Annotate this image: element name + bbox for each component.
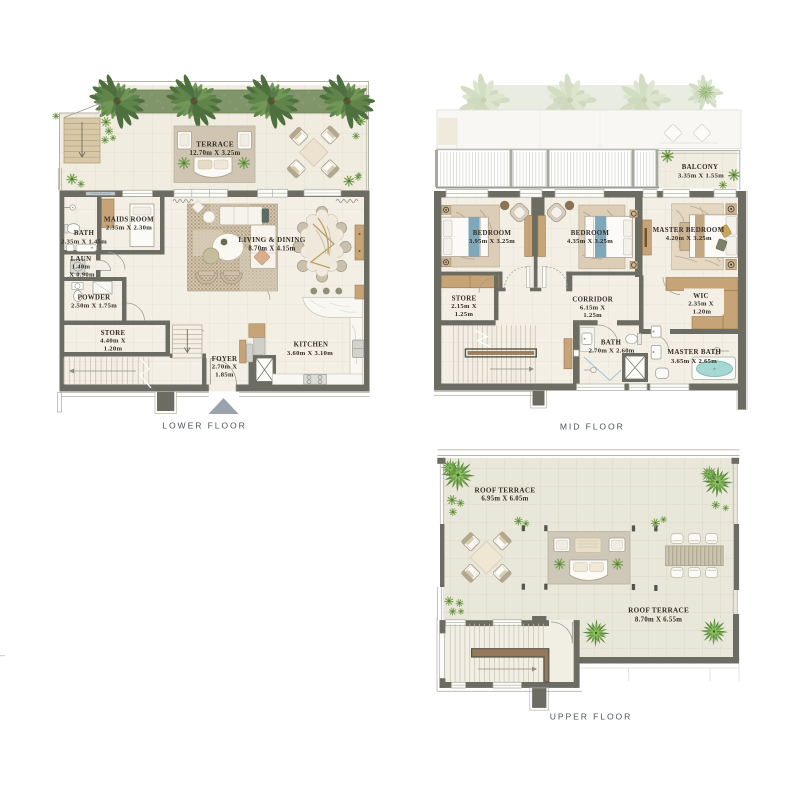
svg-text:CORRIDOR: CORRIDOR (572, 297, 613, 304)
svg-text:LOWER FLOOR: LOWER FLOOR (162, 421, 246, 431)
svg-text:BEDROOM: BEDROOM (473, 230, 512, 237)
svg-text:1.20m: 1.20m (693, 308, 712, 315)
svg-text:4.35m X 3.25m: 4.35m X 3.25m (567, 238, 613, 245)
svg-text:1.20m: 1.20m (104, 345, 123, 352)
svg-text:MAIDS ROOM: MAIDS ROOM (104, 217, 154, 224)
svg-text:8.70m X 6.55m: 8.70m X 6.55m (635, 617, 682, 624)
svg-text:BALCONY: BALCONY (682, 164, 719, 171)
svg-text:LIVING & DINING: LIVING & DINING (238, 236, 305, 244)
svg-text:STORE: STORE (452, 295, 477, 302)
svg-text:3.35m X 1.55m: 3.35m X 1.55m (678, 172, 724, 179)
svg-text:3.95m X 3.25m: 3.95m X 3.25m (469, 238, 515, 245)
svg-text:MASTER BATH: MASTER BATH (668, 349, 722, 356)
svg-text:BATH: BATH (601, 339, 622, 346)
svg-text:BATH: BATH (74, 230, 95, 237)
svg-text:2.35m X 1.45m: 2.35m X 1.45m (61, 239, 107, 246)
svg-text:2.15m X: 2.15m X (451, 303, 477, 310)
svg-text:4.20m X 3.25m: 4.20m X 3.25m (666, 235, 712, 242)
svg-text:1.40m: 1.40m (72, 264, 91, 271)
svg-text:STORE: STORE (101, 330, 126, 337)
svg-text:ROOF TERRACE: ROOF TERRACE (628, 607, 689, 615)
svg-text:3.60m X 3.10m: 3.60m X 3.10m (287, 350, 333, 357)
svg-text:BEDROOM: BEDROOM (571, 230, 610, 237)
svg-text:2.35m X 2.30m: 2.35m X 2.30m (106, 225, 152, 232)
svg-text:2.70m X: 2.70m X (212, 364, 238, 371)
svg-text:4.40m X: 4.40m X (100, 338, 126, 345)
svg-text:X 0.90m: X 0.90m (69, 271, 95, 278)
svg-text:MASTER BEDROOM: MASTER BEDROOM (653, 227, 725, 234)
svg-text:POWDER: POWDER (78, 295, 112, 302)
svg-text:MID FLOOR: MID FLOOR (560, 422, 625, 432)
svg-text:1.25m: 1.25m (455, 311, 474, 318)
svg-text:FOYER: FOYER (212, 356, 238, 363)
svg-text:3.65m X 2.65m: 3.65m X 2.65m (671, 358, 717, 365)
svg-text:ROOF TERRACE: ROOF TERRACE (475, 486, 536, 494)
svg-text:WIC: WIC (693, 293, 708, 300)
svg-text:KITCHEN: KITCHEN (294, 342, 329, 349)
svg-text:TERRACE: TERRACE (196, 139, 234, 148)
svg-text:12.70m X 3.25m: 12.70m X 3.25m (189, 150, 240, 157)
svg-text:LAUN: LAUN (71, 256, 92, 263)
svg-text:1.25m: 1.25m (583, 312, 602, 319)
svg-text:8.70m X 4.15m: 8.70m X 4.15m (248, 246, 295, 253)
svg-text:1.85m: 1.85m (215, 371, 234, 378)
svg-text:UPPER FLOOR: UPPER FLOOR (550, 712, 633, 722)
svg-text:2.35m X: 2.35m X (688, 301, 714, 308)
svg-text:6.95m X 6.05m: 6.95m X 6.05m (481, 495, 528, 502)
svg-text:6.15m X: 6.15m X (580, 304, 606, 311)
svg-text:2.50m X 1.75m: 2.50m X 1.75m (71, 303, 117, 310)
